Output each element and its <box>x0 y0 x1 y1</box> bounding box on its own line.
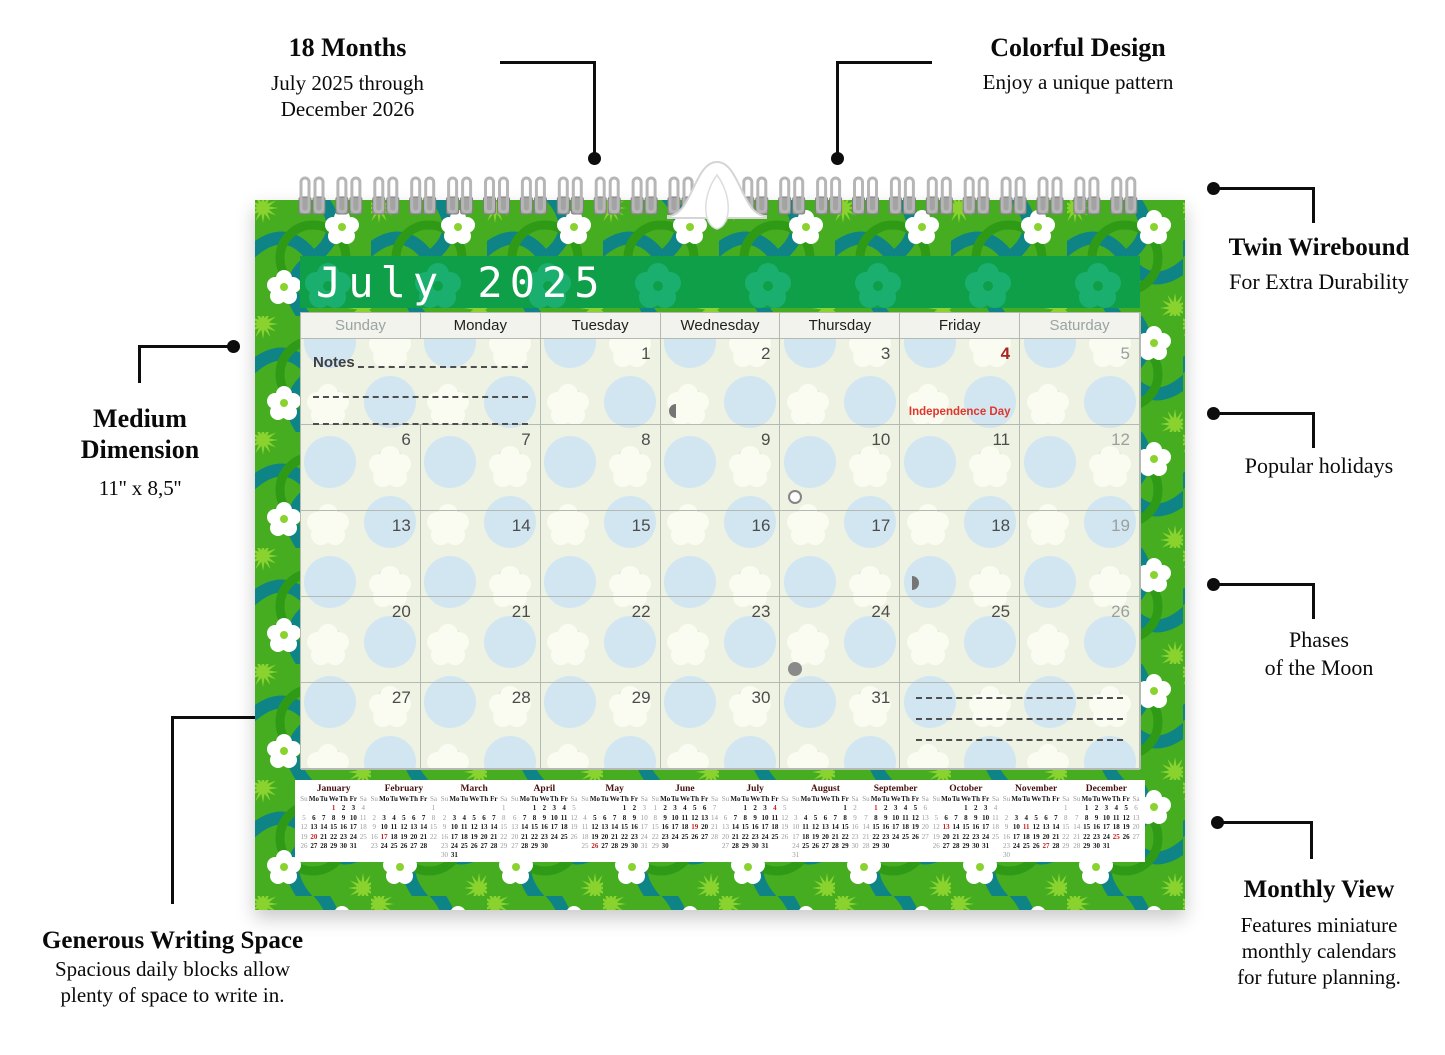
mini-date: 27 <box>820 842 830 851</box>
mini-date: 31 <box>760 842 770 851</box>
mini-date <box>850 851 860 860</box>
mini-date: 9 <box>1092 814 1102 823</box>
mini-date: 14 <box>419 823 429 832</box>
mini-date: 26 <box>569 833 579 842</box>
mini-month-may: MaySuMoTuWeThFrSa12345678910111213141516… <box>580 783 649 861</box>
mini-date: 8 <box>429 814 439 823</box>
mini-month-april: AprilSuMoTuWeThFrSa123456789101112131415… <box>510 783 579 861</box>
mini-date: 27 <box>920 833 930 842</box>
mini-date: 19 <box>399 833 409 842</box>
mini-date: 4 <box>1111 804 1121 813</box>
mini-date: 31 <box>981 842 991 851</box>
mini-date: 16 <box>881 823 891 832</box>
callout-dot <box>831 152 844 165</box>
mini-date: 19 <box>690 823 700 832</box>
annotation-colorful-design: Colorful Design Enjoy a unique pattern <box>953 32 1203 95</box>
date-number: 28 <box>512 688 531 708</box>
mini-date <box>580 804 590 813</box>
mini-date: 4 <box>770 804 780 813</box>
date-number: 5 <box>1121 344 1130 364</box>
mini-date: 2 <box>539 804 549 813</box>
mini-day-header: Su <box>931 795 941 804</box>
calendar-day-cell: 24 <box>780 597 900 683</box>
mini-date: 18 <box>389 833 399 842</box>
mini-day-header: Sa <box>639 795 649 804</box>
notes-label: Notes <box>313 354 355 371</box>
mini-date: 16 <box>1002 833 1012 842</box>
mini-date: 25 <box>389 842 399 851</box>
mini-day-header-row: SuMoTuWeThFrSa <box>791 795 860 804</box>
mini-date: 3 <box>549 804 559 813</box>
mini-date: 3 <box>1011 814 1021 823</box>
mini-date: 16 <box>539 823 549 832</box>
mini-day-header: Mo <box>449 795 459 804</box>
mini-date <box>1002 804 1012 813</box>
mini-date <box>901 842 911 851</box>
annotation-line: Enjoy a unique pattern <box>953 69 1203 95</box>
callout-line <box>1213 187 1315 190</box>
mini-date: 12 <box>931 823 941 832</box>
mini-date: 27 <box>941 842 951 851</box>
mini-week-row: 14151617181920 <box>1072 823 1141 832</box>
mini-date: 27 <box>600 842 610 851</box>
mini-date <box>991 842 1001 851</box>
mini-date: 19 <box>811 833 821 842</box>
callout-line <box>1213 412 1315 415</box>
mini-week-row: 262728293031 <box>931 842 1000 851</box>
mini-date: 12 <box>1121 814 1131 823</box>
mini-date: 12 <box>299 823 309 832</box>
mini-day-header: We <box>1101 795 1111 804</box>
mini-date: 9 <box>850 814 860 823</box>
mini-date: 5 <box>811 814 821 823</box>
mini-week-row: 12131415161718 <box>299 823 368 832</box>
mini-date: 11 <box>801 823 811 832</box>
mini-date <box>1041 851 1051 860</box>
mini-day-header: Mo <box>309 795 319 804</box>
mini-date <box>1031 851 1041 860</box>
mini-week-row: 21222324252627 <box>861 833 930 842</box>
mini-date: 2 <box>750 804 760 813</box>
mini-date: 10 <box>379 823 389 832</box>
mini-week-row: 12131415161718 <box>931 823 1000 832</box>
mini-date: 8 <box>1061 814 1071 823</box>
calendar-day-cell: 16 <box>661 511 781 597</box>
mini-week-row: 123 <box>580 804 649 813</box>
mini-day-header: Fr <box>1121 795 1131 804</box>
mini-date: 18 <box>770 823 780 832</box>
mini-date: 7 <box>861 814 871 823</box>
mini-date: 15 <box>961 823 971 832</box>
mini-day-header: Su <box>440 795 450 804</box>
mini-date <box>1051 851 1061 860</box>
mini-date <box>1041 804 1051 813</box>
annotation-monthly-view: Monthly View Features miniature monthly … <box>1195 874 1443 990</box>
annotation-line: Phases <box>1195 626 1443 654</box>
mini-date: 14 <box>951 823 961 832</box>
mini-date: 12 <box>811 823 821 832</box>
day-header-friday: Friday <box>900 313 1020 339</box>
mini-date: 1 <box>329 804 339 813</box>
mini-date: 28 <box>710 833 720 842</box>
mini-date <box>1051 804 1061 813</box>
mini-date: 23 <box>339 833 349 842</box>
mini-date <box>600 804 610 813</box>
mini-date: 9 <box>369 823 379 832</box>
mini-date: 21 <box>730 833 740 842</box>
date-number: 25 <box>991 602 1010 622</box>
mini-date <box>459 804 469 813</box>
mini-day-header: Fr <box>629 795 639 804</box>
mini-day-header-row: SuMoTuWeThFrSa <box>861 795 930 804</box>
mini-month-name: February <box>369 783 438 795</box>
annotation-line: July 2025 through <box>215 70 480 96</box>
mini-date: 19 <box>910 823 920 832</box>
mini-date <box>1111 842 1121 851</box>
calendar-day-cell: 22 <box>541 597 661 683</box>
mini-date <box>389 804 399 813</box>
day-header-saturday: Saturday <box>1020 313 1140 339</box>
mini-date: 30 <box>539 842 549 851</box>
mini-date: 18 <box>358 823 368 832</box>
mini-date: 7 <box>830 814 840 823</box>
date-number: 9 <box>761 430 770 450</box>
mini-date: 13 <box>409 823 419 832</box>
mini-date: 11 <box>1111 814 1121 823</box>
mini-date: 17 <box>760 823 770 832</box>
mini-date: 28 <box>1051 842 1061 851</box>
mini-date <box>1131 842 1141 851</box>
mini-date: 12 <box>1031 823 1041 832</box>
mini-date: 4 <box>801 814 811 823</box>
mini-day-header: Sa <box>920 795 930 804</box>
mini-day-header: Fr <box>910 795 920 804</box>
mini-months-strip: JanuarySuMoTuWeThFrSa1234567891011121314… <box>295 780 1145 862</box>
mini-day-header: Fr <box>419 795 429 804</box>
mini-date: 26 <box>299 842 309 851</box>
mini-date: 8 <box>530 814 540 823</box>
calendar-day-cell: 19 <box>1020 511 1140 597</box>
mini-date: 20 <box>479 833 489 842</box>
mini-week-row: 16171819202122 <box>440 833 509 842</box>
mini-date: 2 <box>971 804 981 813</box>
mini-day-header: Mo <box>660 795 670 804</box>
mini-date: 28 <box>319 842 329 851</box>
mini-date: 16 <box>660 823 670 832</box>
day-header-thursday: Thursday <box>780 313 900 339</box>
mini-date: 3 <box>891 804 901 813</box>
mini-day-header: Su <box>1002 795 1012 804</box>
mini-date <box>830 804 840 813</box>
date-number: 20 <box>392 602 411 622</box>
mini-date: 25 <box>680 833 690 842</box>
mini-date: 21 <box>1072 833 1082 842</box>
date-number: 26 <box>1111 602 1130 622</box>
mini-date: 9 <box>1002 823 1012 832</box>
mini-day-header-row: SuMoTuWeThFrSa <box>580 795 649 804</box>
mini-date: 23 <box>660 833 670 842</box>
mini-day-header: Mo <box>379 795 389 804</box>
mini-date: 11 <box>680 814 690 823</box>
calendar-day-cell: 23 <box>661 597 781 683</box>
mini-date: 9 <box>750 814 760 823</box>
mini-date: 21 <box>520 833 530 842</box>
mini-week-row: 12 <box>791 804 860 813</box>
callout-line <box>836 61 932 64</box>
mini-week-row: 28293031 <box>1072 842 1141 851</box>
mini-week-row: 282930 <box>861 842 930 851</box>
mini-week-row: 567891011 <box>299 814 368 823</box>
mini-month-name: May <box>580 783 649 795</box>
mini-date: 29 <box>499 842 509 851</box>
mini-date <box>479 804 489 813</box>
mini-date: 30 <box>971 842 981 851</box>
date-number: 4 <box>1001 344 1010 364</box>
mini-date: 1 <box>1082 804 1092 813</box>
date-number: 10 <box>871 430 890 450</box>
annotation-title: Popular holidays <box>1195 453 1443 479</box>
mini-day-header-row: SuMoTuWeThFrSa <box>299 795 368 804</box>
mini-date <box>680 842 690 851</box>
mini-date: 22 <box>961 833 971 842</box>
mini-date: 18 <box>459 833 469 842</box>
mini-week-row: 232425262728 <box>369 842 438 851</box>
mini-week-row: 23242526272829 <box>1002 842 1071 851</box>
mini-date: 17 <box>1011 833 1021 842</box>
mini-date: 11 <box>389 823 399 832</box>
mini-date: 15 <box>740 823 750 832</box>
mini-date: 16 <box>971 823 981 832</box>
mini-date: 15 <box>840 823 850 832</box>
mini-date: 15 <box>650 823 660 832</box>
mini-day-header: Th <box>830 795 840 804</box>
mini-date <box>931 804 941 813</box>
mini-day-header-row: SuMoTuWeThFrSa <box>931 795 1000 804</box>
mini-date: 3 <box>670 804 680 813</box>
annotation-line: Features miniature <box>1195 912 1443 938</box>
mini-date: 19 <box>569 823 579 832</box>
mini-date: 28 <box>951 842 961 851</box>
mini-date: 29 <box>650 842 660 851</box>
mini-week-row: 891011121314 <box>650 814 719 823</box>
mini-day-header: Su <box>861 795 871 804</box>
mini-date: 18 <box>901 823 911 832</box>
mini-week-row: 6789101112 <box>721 814 790 823</box>
mini-date: 31 <box>791 851 801 860</box>
mini-date: 16 <box>1092 823 1102 832</box>
annotation-line: plenty of space to write in. <box>15 982 330 1008</box>
mini-date: 11 <box>1021 823 1031 832</box>
mini-date: 28 <box>610 842 620 851</box>
mini-date <box>710 842 720 851</box>
calendar-day-cell: 25 <box>900 597 1020 683</box>
last-quarter-moon-icon <box>912 576 919 590</box>
mini-date: 8 <box>650 814 660 823</box>
annotation-writing-space: Generous Writing Space Spacious daily bl… <box>15 925 330 1008</box>
mini-week-row: 1 <box>440 804 509 813</box>
mini-month-august: AugustSuMoTuWeThFrSa12345678910111213141… <box>791 783 860 861</box>
mini-date: 24 <box>760 833 770 842</box>
mini-date: 17 <box>348 823 358 832</box>
mini-date: 1 <box>499 804 509 813</box>
mini-date: 8 <box>840 814 850 823</box>
mini-day-header: We <box>820 795 830 804</box>
mini-date: 6 <box>941 814 951 823</box>
mini-date: 13 <box>700 814 710 823</box>
annotation-title: Generous Writing Space <box>15 925 330 956</box>
mini-month-name: June <box>650 783 719 795</box>
mini-date: 20 <box>941 833 951 842</box>
mini-week-row: 2345678 <box>1002 814 1071 823</box>
mini-month-name: January <box>299 783 368 795</box>
mini-date: 17 <box>549 823 559 832</box>
month-title: July 2025 <box>316 258 1136 308</box>
callout-dot <box>588 152 601 165</box>
mini-date: 16 <box>339 823 349 832</box>
mini-date: 2 <box>1002 814 1012 823</box>
mini-date: 28 <box>520 842 530 851</box>
mini-week-row: 15161718192021 <box>650 823 719 832</box>
callout-line <box>1213 583 1315 586</box>
mini-date: 12 <box>469 823 479 832</box>
mini-date <box>379 804 389 813</box>
mini-week-row: 31 <box>791 851 860 860</box>
mini-date: 25 <box>1111 833 1121 842</box>
annotation-line: December 2026 <box>215 96 480 122</box>
callout-dot <box>227 340 240 353</box>
writing-lines-cell <box>900 683 1140 770</box>
mini-day-header-row: SuMoTuWeThFrSa <box>510 795 579 804</box>
mini-date: 21 <box>710 823 720 832</box>
mini-date <box>700 842 710 851</box>
mini-date: 3 <box>348 804 358 813</box>
annotation-line: monthly calendars <box>1195 938 1443 964</box>
mini-date: 15 <box>329 823 339 832</box>
mini-day-header: We <box>469 795 479 804</box>
mini-date: 23 <box>971 833 981 842</box>
mini-date <box>801 804 811 813</box>
mini-date: 20 <box>510 833 520 842</box>
mini-date: 16 <box>850 823 860 832</box>
mini-day-header: Fr <box>840 795 850 804</box>
calendar-day-cell: 28 <box>421 683 541 770</box>
mini-day-header-row: SuMoTuWeThFrSa <box>440 795 509 804</box>
mini-day-header: Sa <box>780 795 790 804</box>
mini-date: 22 <box>620 833 630 842</box>
new-moon-icon <box>788 662 802 676</box>
mini-date: 12 <box>590 823 600 832</box>
mini-date <box>520 804 530 813</box>
mini-date: 11 <box>991 814 1001 823</box>
mini-day-header: Su <box>650 795 660 804</box>
annotation-title: Medium <box>55 403 225 434</box>
mini-week-row: 16171819202122 <box>1002 833 1071 842</box>
mini-date: 2 <box>850 804 860 813</box>
mini-date: 30 <box>1002 851 1012 860</box>
mini-date: 4 <box>1021 814 1031 823</box>
mini-date: 13 <box>1041 823 1051 832</box>
mini-date <box>369 804 379 813</box>
mini-date: 22 <box>650 833 660 842</box>
mini-date: 4 <box>991 804 1001 813</box>
mini-day-header: Th <box>690 795 700 804</box>
notes-cell: Notes <box>301 339 541 425</box>
mini-day-header: Mo <box>1011 795 1021 804</box>
callout-line <box>1312 187 1315 223</box>
month-grid: SundayMondayTuesdayWednesdayThursdayFrid… <box>300 312 1141 769</box>
date-number: 30 <box>752 688 771 708</box>
mini-date: 13 <box>920 814 930 823</box>
mini-date: 9 <box>629 814 639 823</box>
mini-month-november: NovemberSuMoTuWeThFrSa123456789101112131… <box>1002 783 1071 861</box>
mini-date: 15 <box>530 823 540 832</box>
mini-date: 4 <box>580 814 590 823</box>
mini-date: 6 <box>920 804 930 813</box>
mini-date: 26 <box>811 842 821 851</box>
mini-date: 27 <box>1041 842 1051 851</box>
calendar-day-cell: 1 <box>541 339 661 425</box>
mini-date: 23 <box>629 833 639 842</box>
mini-week-row: 1 <box>369 804 438 813</box>
mini-date: 27 <box>409 842 419 851</box>
calendar-day-cell: 27 <box>301 683 421 770</box>
calendar-day-cell: 8 <box>541 425 661 511</box>
mini-date: 16 <box>369 833 379 842</box>
mini-date: 21 <box>610 833 620 842</box>
mini-date: 14 <box>610 823 620 832</box>
mini-date: 19 <box>1121 823 1131 832</box>
mini-date: 3 <box>449 814 459 823</box>
mini-date: 18 <box>580 833 590 842</box>
mini-date: 30 <box>850 842 860 851</box>
mini-date: 5 <box>399 814 409 823</box>
mini-date: 18 <box>1021 833 1031 842</box>
callout-line <box>1217 821 1313 824</box>
mini-date: 24 <box>379 842 389 851</box>
mini-date: 17 <box>449 833 459 842</box>
mini-date: 17 <box>981 823 991 832</box>
mini-date <box>820 804 830 813</box>
mini-date: 26 <box>931 842 941 851</box>
mini-week-row: 25262728293031 <box>580 842 649 851</box>
mini-date: 26 <box>1121 833 1131 842</box>
mini-date: 1 <box>840 804 850 813</box>
mini-date: 27 <box>309 842 319 851</box>
mini-date: 24 <box>981 833 991 842</box>
mini-date: 1 <box>650 804 660 813</box>
mini-week-row: 30 <box>1002 851 1071 860</box>
mini-month-name: September <box>861 783 930 795</box>
mini-date: 10 <box>549 814 559 823</box>
mini-date: 1 <box>961 804 971 813</box>
callout-line <box>138 345 234 348</box>
mini-date <box>1121 842 1131 851</box>
notes-dashed-line <box>358 366 528 368</box>
callout-line <box>138 345 141 383</box>
mini-date: 25 <box>1021 842 1031 851</box>
mini-day-header: Sa <box>1131 795 1141 804</box>
dashed-line <box>916 718 1123 720</box>
mini-week-row: 24252627282930 <box>791 842 860 851</box>
calendar-day-cell: 29 <box>541 683 661 770</box>
mini-date: 25 <box>991 833 1001 842</box>
mini-date: 27 <box>479 842 489 851</box>
mini-date <box>479 851 489 860</box>
callout-line <box>171 716 174 904</box>
mini-date: 11 <box>459 823 469 832</box>
notes-dashed-line <box>313 396 528 398</box>
mini-day-header-row: SuMoTuWeThFrSa <box>1002 795 1071 804</box>
